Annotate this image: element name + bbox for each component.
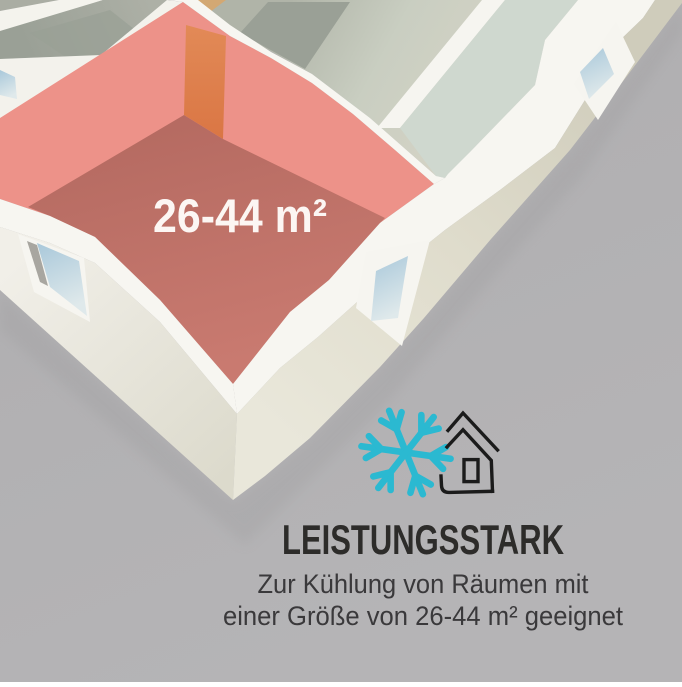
svg-text:einer Größe von 26-44 m² geeig: einer Größe von 26-44 m² geeignet bbox=[223, 601, 623, 631]
svg-text:26-44 m²: 26-44 m² bbox=[153, 189, 327, 242]
svg-text:Zur Kühlung von Räumen mit: Zur Kühlung von Räumen mit bbox=[258, 569, 589, 599]
svg-text:LEISTUNGSSTARK: LEISTUNGSSTARK bbox=[282, 516, 564, 563]
